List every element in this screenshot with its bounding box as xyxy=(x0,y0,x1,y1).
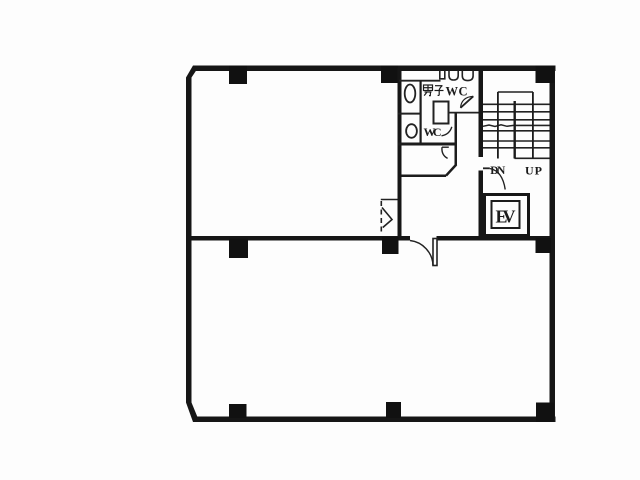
svg-text:WC: WC xyxy=(446,84,468,98)
svg-text:EV: EV xyxy=(496,207,516,227)
svg-text:WC: WC xyxy=(424,125,442,139)
svg-text:DN: DN xyxy=(490,165,506,177)
svg-text:UP: UP xyxy=(525,164,542,178)
